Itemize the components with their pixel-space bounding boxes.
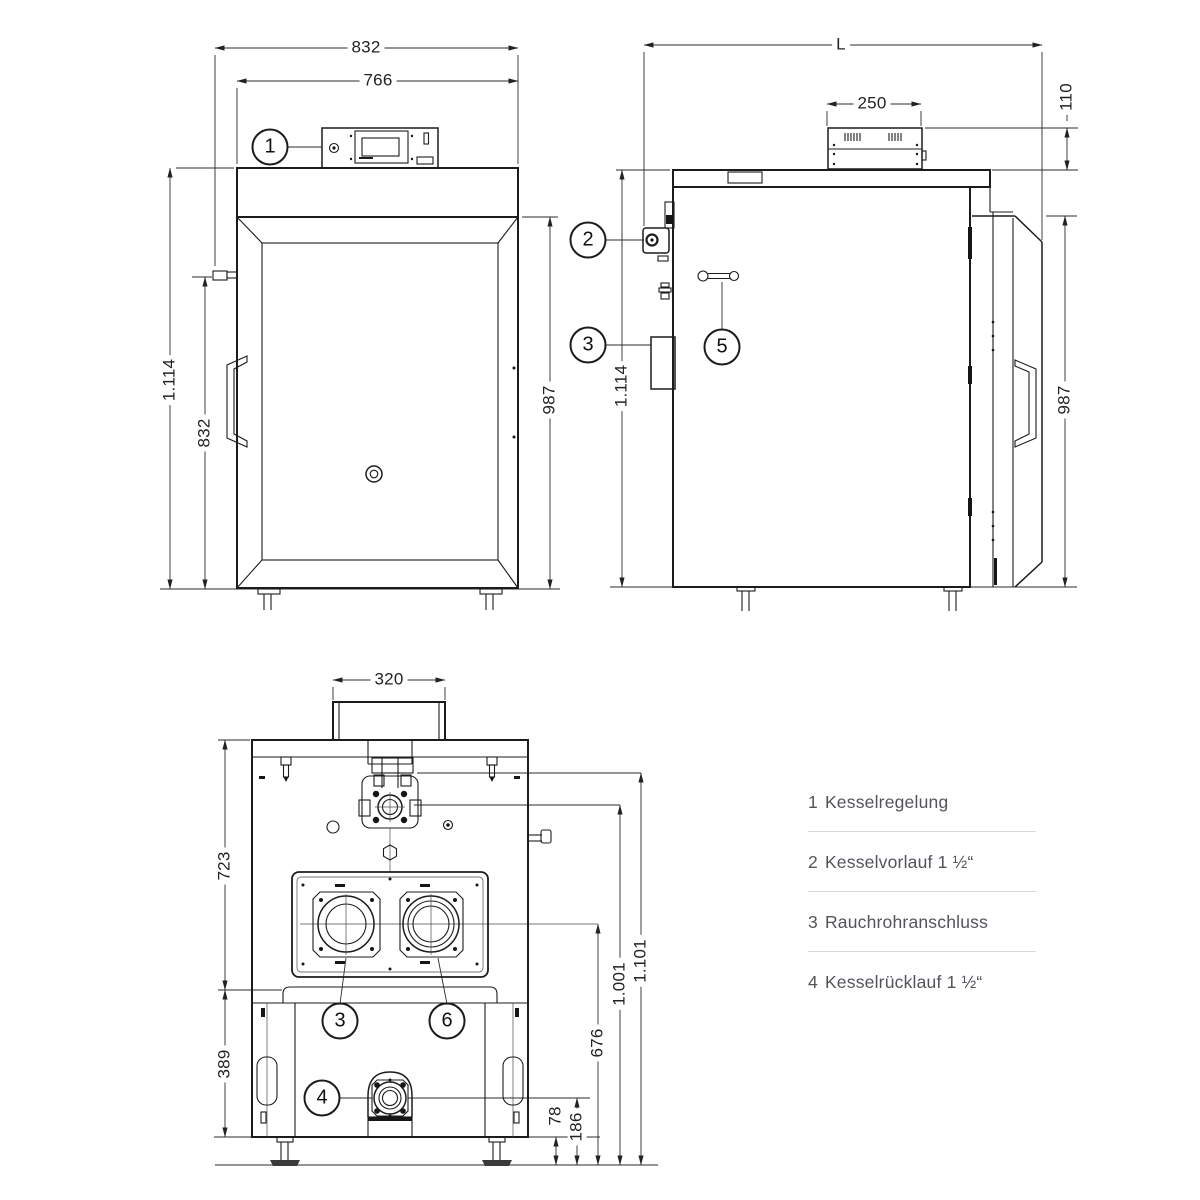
dim-front-height-total: 1.114: [161, 355, 180, 405]
dim-front-width-total: 832: [348, 39, 385, 58]
dim-side-controller-width: 250: [854, 95, 891, 114]
legend-item-boiler-control: 1 Kesselregelung: [808, 791, 948, 813]
callout-3-flue-connection-side: 3: [570, 327, 607, 364]
callout-5-handle: 5: [704, 329, 741, 366]
legend-item-label: Kesselrücklauf 1 ½“: [825, 972, 982, 993]
dim-rear-bottom-clearance: 78: [547, 1102, 566, 1129]
dim-front-latch-height: 832: [196, 415, 215, 452]
legend-item-label: Kesselvorlauf 1 ½“: [825, 852, 974, 873]
legend-divider: [808, 831, 1036, 832]
legend-item-number: 4: [808, 972, 818, 993]
callout-4-return-connection: 4: [304, 1080, 341, 1117]
callout-2-flow-connection: 2: [570, 222, 607, 259]
legend-item-number: 2: [808, 852, 818, 873]
legend-item-label: Kesselregelung: [825, 792, 948, 813]
dim-front-door-height: 987: [541, 382, 560, 419]
dim-front-width-body: 766: [360, 72, 397, 91]
legend-item-label: Rauchrohranschluss: [825, 912, 988, 933]
dim-rear-flow-height: 1.001: [611, 958, 630, 1010]
technical-drawing-canvas: [0, 0, 1200, 1200]
callout-1-boiler-control: 1: [252, 129, 289, 166]
legend-divider: [808, 891, 1036, 892]
legend-item-flue: 3 Rauchrohranschluss: [808, 911, 988, 933]
legend-item-number: 3: [808, 912, 818, 933]
callout-3-flue-connection-rear: 3: [322, 1003, 359, 1040]
legend-item-return: 4 Kesselrücklauf 1 ½“: [808, 971, 982, 993]
legend-divider: [808, 951, 1036, 952]
dim-rear-upper-height: 723: [216, 848, 235, 885]
dim-side-controller-height: 110: [1058, 79, 1077, 115]
dim-rear-flue-duct-width: 320: [371, 671, 408, 690]
boiler-dimension-drawing: 832 766 1.114 832 987 L 250 110 1.114 98…: [0, 0, 1200, 1200]
dim-rear-flue-center: 676: [589, 1025, 608, 1062]
dim-rear-top-height: 1.101: [632, 935, 651, 987]
legend-item-number: 1: [808, 792, 818, 813]
callout-6-opening: 6: [429, 1003, 466, 1040]
dim-side-height-total: 1.114: [613, 361, 632, 411]
dim-side-door-height: 987: [1056, 382, 1075, 419]
side-view: [604, 45, 1078, 611]
rear-view: [214, 680, 658, 1166]
dim-rear-lower-height: 389: [216, 1046, 235, 1083]
dim-side-length: L: [832, 36, 850, 55]
legend-item-flow: 2 Kesselvorlauf 1 ½“: [808, 851, 973, 873]
front-view: [160, 48, 560, 610]
dim-rear-return-height: 186: [568, 1109, 587, 1146]
